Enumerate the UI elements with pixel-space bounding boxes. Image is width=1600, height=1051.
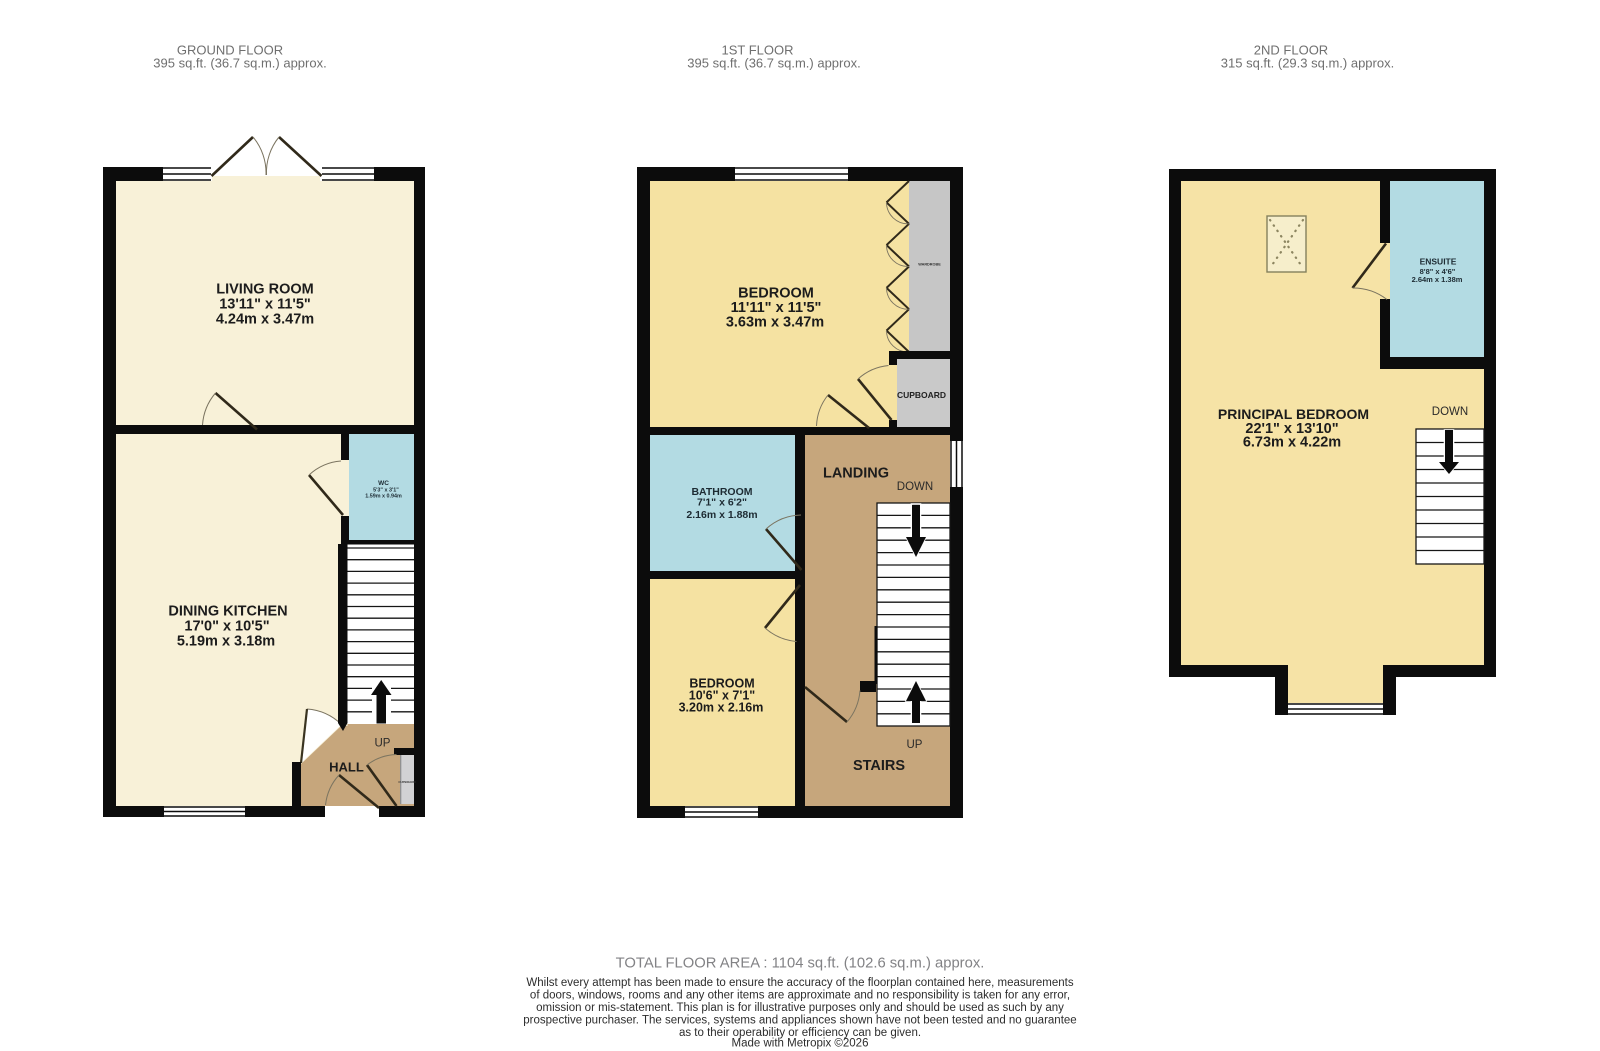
svg-text:PRINCIPAL BEDROOM: PRINCIPAL BEDROOM [1218, 406, 1369, 422]
svg-text:STAIRS: STAIRS [853, 758, 905, 774]
svg-text:UP: UP [375, 738, 391, 750]
svg-text:LIVING ROOM: LIVING ROOM [216, 282, 313, 298]
svg-text:Whilst every attempt has been: Whilst every attempt has been made to en… [526, 977, 1073, 989]
svg-text:HALL: HALL [329, 760, 364, 775]
svg-text:6.73m x 4.22m: 6.73m x 4.22m [1243, 435, 1341, 451]
svg-text:of doors, windows, rooms and a: of doors, windows, rooms and any other i… [530, 990, 1070, 1002]
svg-text:395 sq.ft. (36.7 sq.m.) approx: 395 sq.ft. (36.7 sq.m.) approx. [153, 56, 326, 71]
svg-text:DINING KITCHEN: DINING KITCHEN [168, 604, 287, 620]
svg-text:3.63m x 3.47m: 3.63m x 3.47m [726, 315, 824, 331]
svg-text:prospective purchaser. The ser: prospective purchaser. The services, sys… [523, 1015, 1076, 1027]
svg-text:395 sq.ft. (36.7 sq.m.) approx: 395 sq.ft. (36.7 sq.m.) approx. [687, 56, 860, 71]
svg-text:17'0" x 10'5": 17'0" x 10'5" [184, 619, 269, 635]
svg-text:WC: WC [378, 480, 389, 487]
svg-text:CUPBOARD: CUPBOARD [398, 780, 416, 784]
svg-text:7'1" x 6'2": 7'1" x 6'2" [697, 497, 747, 509]
svg-text:13'11" x 11'5": 13'11" x 11'5" [219, 297, 311, 313]
svg-text:UP: UP [907, 739, 923, 751]
svg-text:2.64m x 1.38m: 2.64m x 1.38m [1412, 275, 1463, 284]
svg-text:DOWN: DOWN [1432, 406, 1468, 418]
svg-text:2.16m x 1.88m: 2.16m x 1.88m [686, 509, 757, 521]
svg-text:ENSUITE: ENSUITE [1420, 257, 1457, 267]
svg-text:CUPBOARD: CUPBOARD [897, 390, 946, 400]
svg-text:315 sq.ft. (29.3 sq.m.) approx: 315 sq.ft. (29.3 sq.m.) approx. [1221, 56, 1394, 71]
svg-text:1.59m x 0.94m: 1.59m x 0.94m [365, 494, 402, 500]
svg-text:4.24m x 3.47m: 4.24m x 3.47m [216, 312, 314, 328]
svg-text:omission or mis-statement. Thi: omission or mis-statement. This plan is … [536, 1002, 1064, 1014]
svg-text:TOTAL FLOOR AREA : 1104 sq.ft.: TOTAL FLOOR AREA : 1104 sq.ft. (102.6 sq… [616, 956, 985, 972]
svg-text:WARDROBE: WARDROBE [918, 263, 941, 267]
svg-text:3.20m x 2.16m: 3.20m x 2.16m [679, 701, 764, 715]
svg-text:Made with Metropix ©2026: Made with Metropix ©2026 [732, 1038, 869, 1050]
svg-text:DOWN: DOWN [897, 481, 933, 493]
svg-text:LANDING: LANDING [823, 466, 889, 482]
svg-text:5.19m x 3.18m: 5.19m x 3.18m [177, 634, 275, 650]
